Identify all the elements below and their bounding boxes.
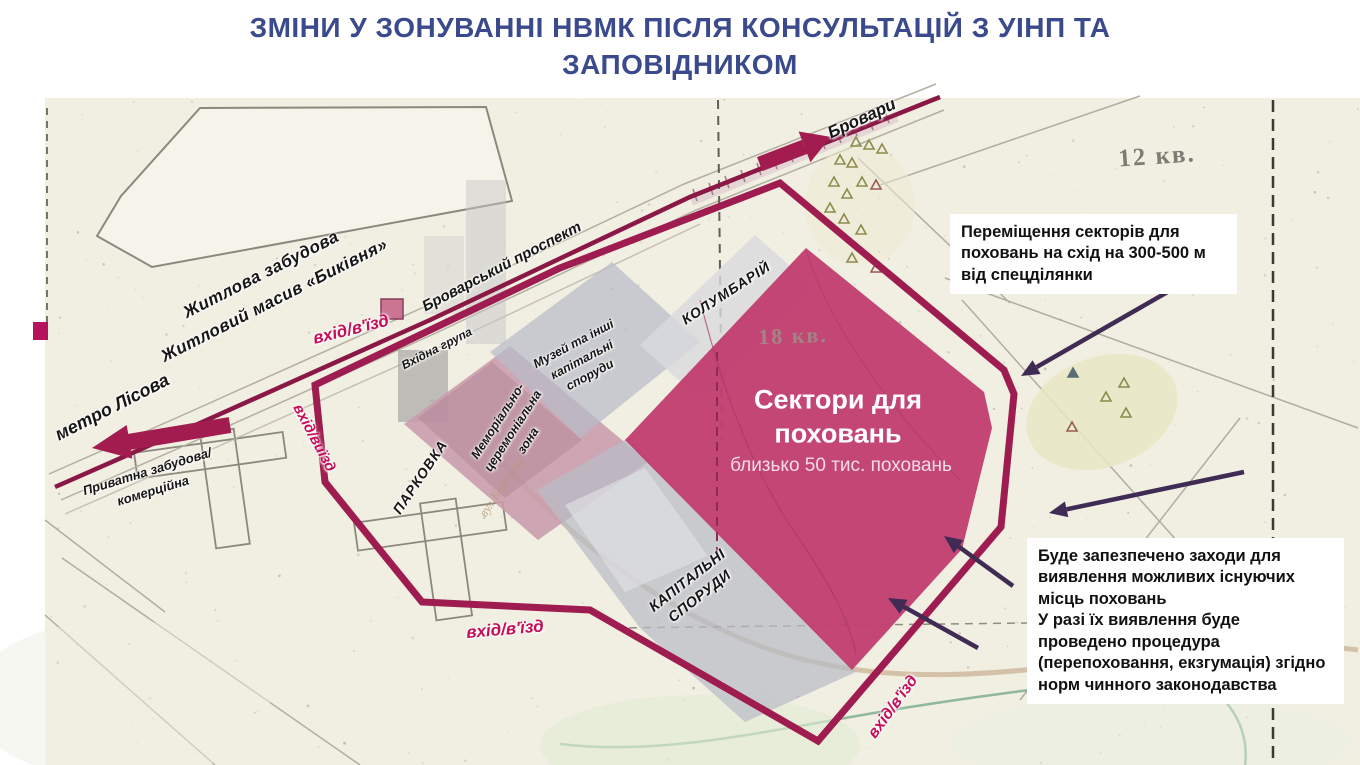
- sectors-title: Сектори для поховань: [754, 383, 922, 451]
- metro-marker: [33, 322, 48, 340]
- label-quadrant-18: 18 кв.: [758, 319, 829, 353]
- slide: ЗМІНИ У ЗОНУВАННІ НВМК ПІСЛЯ КОНСУЛЬТАЦІ…: [0, 0, 1360, 765]
- annotation-relocation: Переміщення секторів для поховань на схі…: [950, 214, 1237, 294]
- annotation-procedure: Буде запезпечено заходи для виявлення мо…: [1027, 538, 1344, 704]
- sectors-subtitle: близько 50 тис. поховань: [730, 455, 952, 477]
- label-quadrant-12: 12 кв.: [1117, 136, 1197, 178]
- page-title: ЗМІНИ У ЗОНУВАННІ НВМК ПІСЛЯ КОНСУЛЬТАЦІ…: [0, 10, 1360, 84]
